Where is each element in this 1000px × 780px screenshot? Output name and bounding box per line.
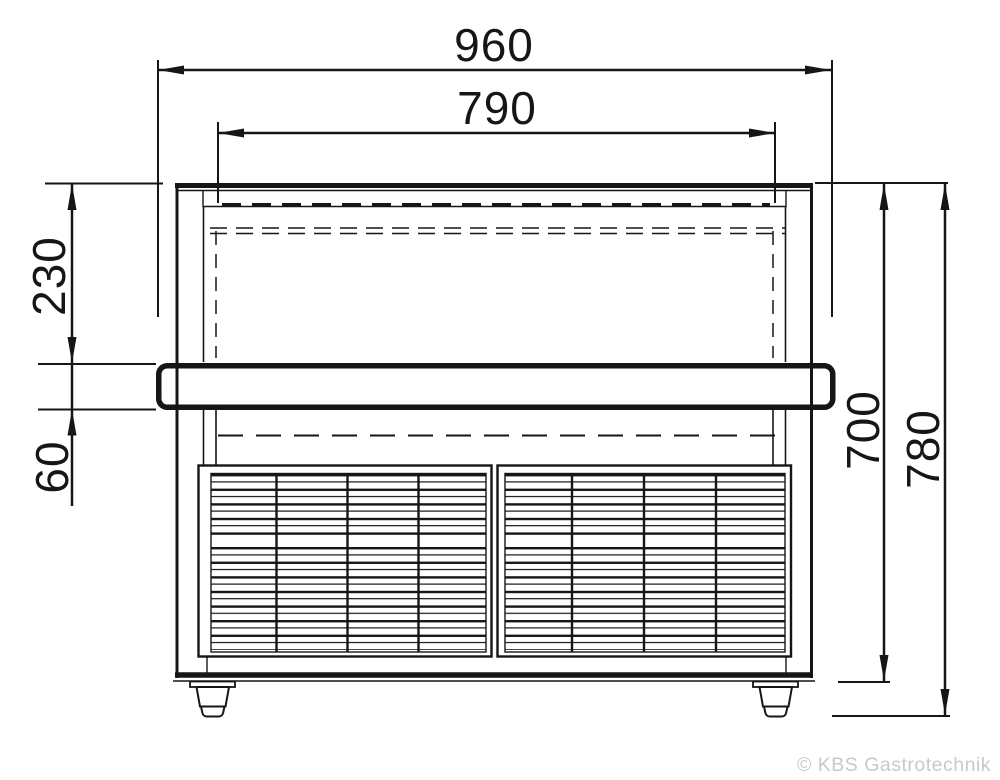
- arrow-right-icon: [805, 66, 831, 75]
- arrow-up-icon: [68, 410, 77, 436]
- dimension-label-body-height: 700: [837, 390, 889, 470]
- arrow-down-icon: [941, 689, 950, 715]
- refrigerated-display-case-front-elevation: 960 790 230 60 700 780 © K: [0, 0, 1000, 780]
- dimension-label-overall-width: 960: [454, 19, 534, 71]
- dimension-label-bumper-height: 60: [26, 440, 78, 493]
- arrow-right-icon: [749, 129, 775, 138]
- bumper-rail-outline: [159, 366, 833, 408]
- left-foot: [190, 682, 235, 717]
- technical-drawing-page: 960 790 230 60 700 780 © K: [0, 0, 1000, 780]
- dimension-left-heights: 230 60: [23, 184, 163, 507]
- arrow-up-icon: [68, 184, 77, 210]
- watermark-text: © KBS Gastrotechnik: [797, 754, 991, 776]
- bumper-rail: [159, 366, 833, 408]
- right-foot: [753, 682, 798, 717]
- dimension-label-inner-width: 790: [457, 82, 537, 134]
- arrow-up-icon: [880, 184, 889, 210]
- arrow-left-icon: [218, 129, 244, 138]
- ventilation-grille: [199, 466, 792, 657]
- arrow-left-icon: [158, 66, 184, 75]
- dimension-overall-width: 960: [158, 19, 832, 317]
- dimension-label-top-to-bumper: 230: [23, 236, 75, 316]
- feet: [190, 682, 798, 717]
- grille-right-divider-gap: [503, 537, 788, 544]
- arrow-down-icon: [68, 337, 77, 363]
- arrow-down-icon: [880, 655, 889, 681]
- arrow-up-icon: [941, 184, 950, 210]
- dimension-label-overall-height: 780: [897, 409, 949, 489]
